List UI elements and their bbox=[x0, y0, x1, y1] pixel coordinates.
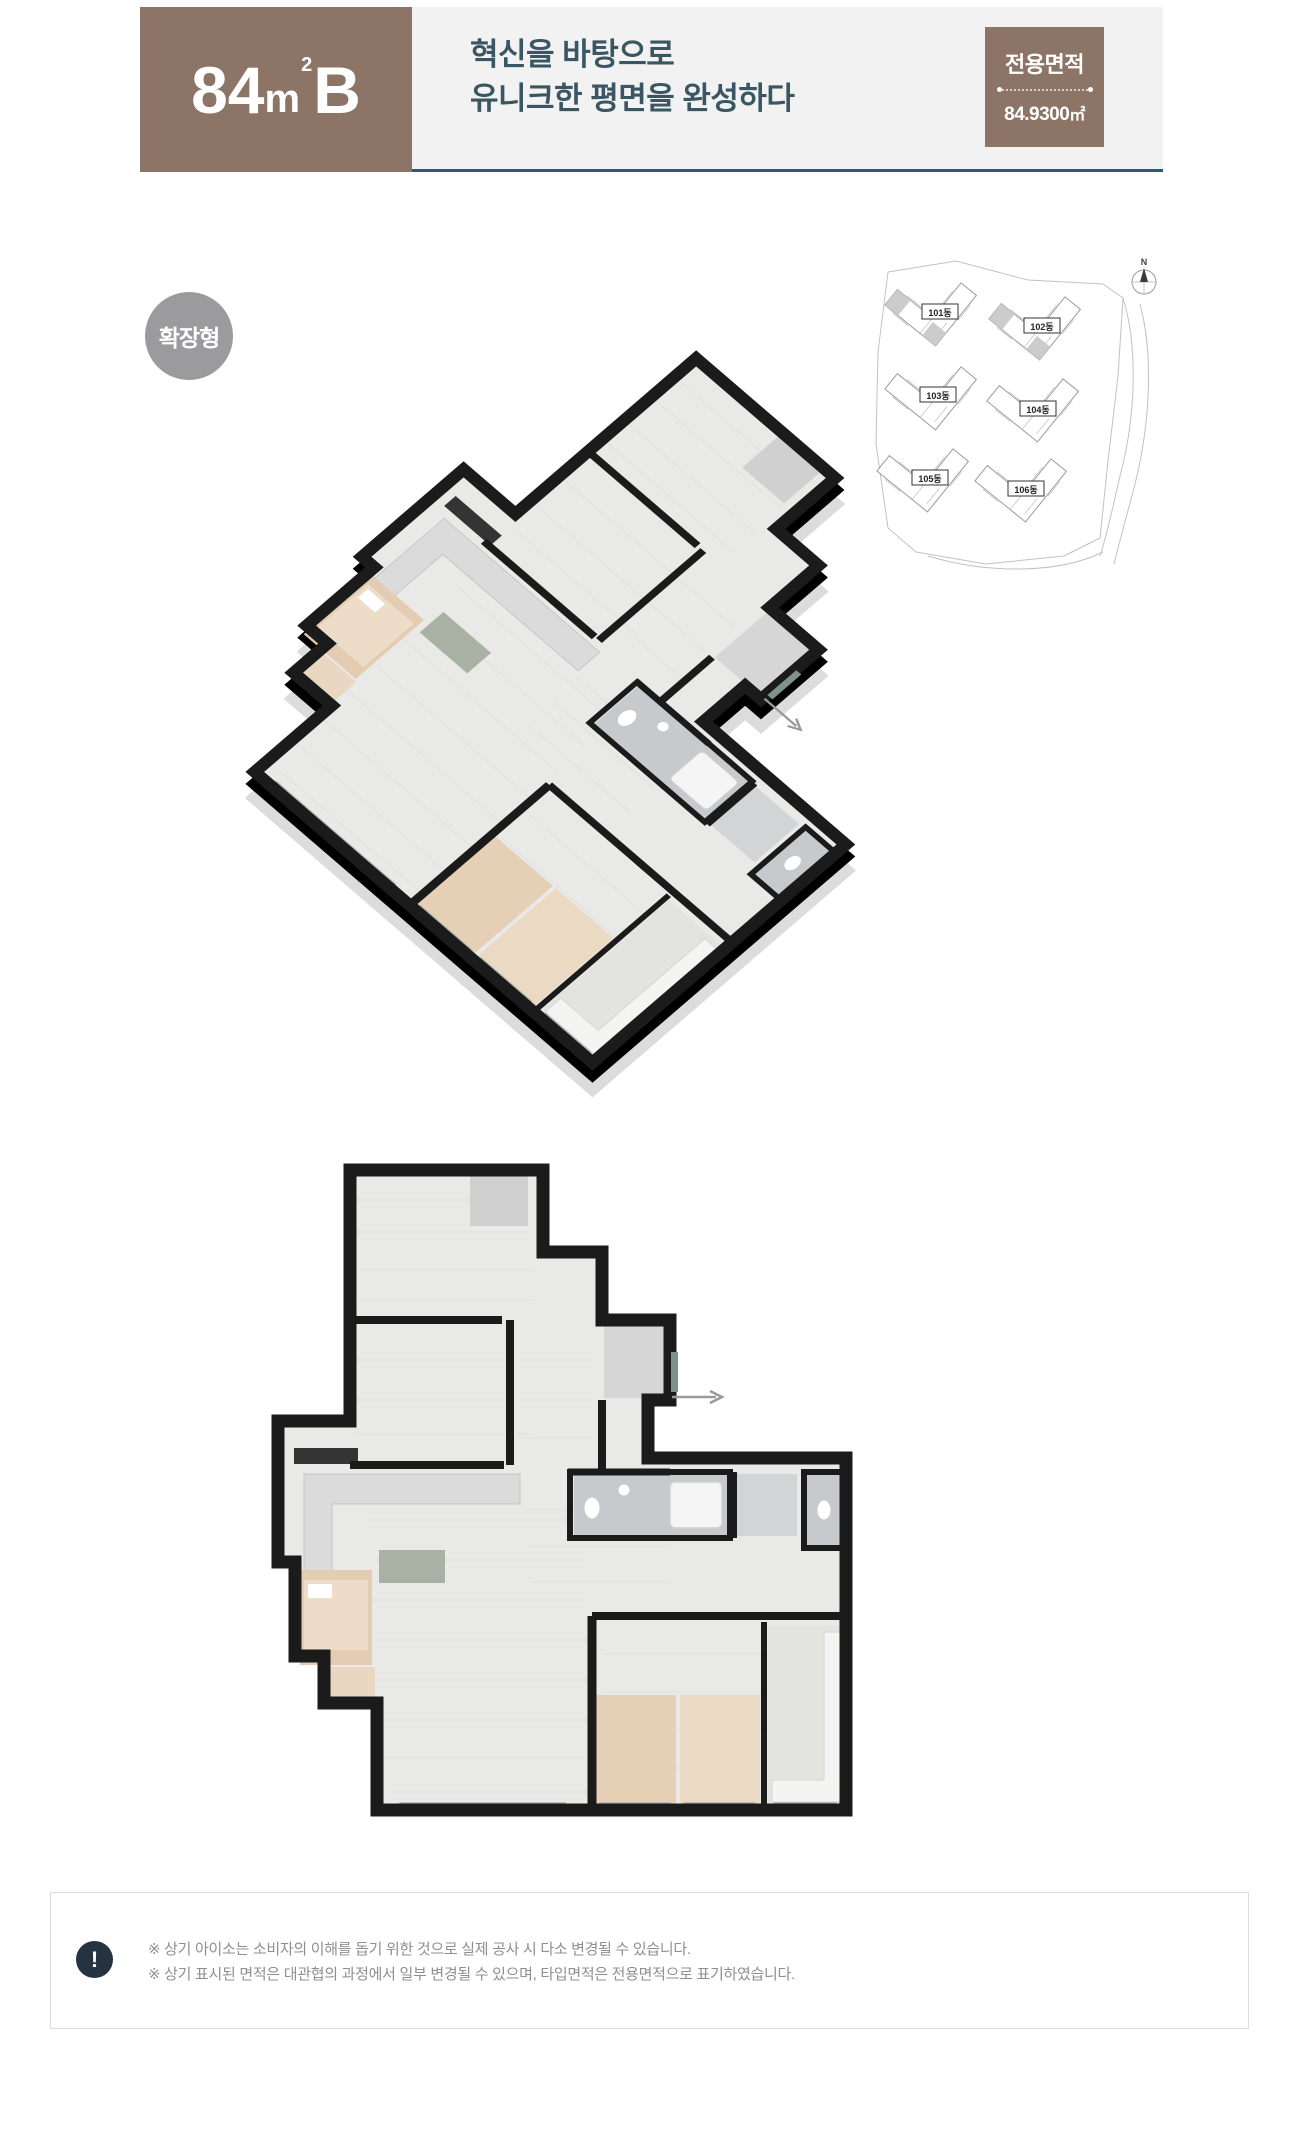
expansion-type-label: 확장형 bbox=[159, 319, 219, 353]
area-unit: ㎡ bbox=[1069, 107, 1085, 124]
building-103-label: 103동 bbox=[920, 387, 956, 402]
disclaimer-note-2: ※ 상기 표시된 면적은 대관협의 과정에서 일부 변경될 수 있으며, 타입면… bbox=[148, 1962, 795, 1987]
floor-plan-page: { "header": { "type_badge": { "number": … bbox=[0, 0, 1300, 2149]
building-105-label: 105동 bbox=[912, 470, 948, 485]
building-106-label: 106동 bbox=[1008, 481, 1044, 496]
exclusive-area-label: 전용면적 bbox=[985, 47, 1104, 79]
title-line1: 혁신을 바탕으로 bbox=[470, 33, 950, 77]
unit-type-superscript: 2 bbox=[301, 54, 312, 76]
site-map: N 101동 102동 103동 104동 105동 106동 bbox=[868, 256, 1174, 582]
exclusive-area-box: 전용면적 84.9300㎡ bbox=[985, 27, 1104, 147]
building-102-label: 102동 bbox=[1024, 318, 1060, 333]
disclaimer-box: ! ※ 상기 아이소는 소비자의 이해를 돕기 위한 것으로 실제 공사 시 다… bbox=[50, 1892, 1249, 2029]
compass-north-label: N bbox=[1141, 257, 1148, 267]
unit-type-number: 84 bbox=[191, 57, 264, 123]
svg-text:104동: 104동 bbox=[1026, 405, 1049, 415]
unit-type-suffix: B bbox=[313, 57, 361, 123]
svg-text:102동: 102동 bbox=[1030, 322, 1053, 332]
dotted-divider bbox=[999, 89, 1091, 93]
building-104-label: 104동 bbox=[1020, 401, 1056, 416]
expansion-type-badge: 확장형 bbox=[145, 292, 233, 380]
svg-text:105동: 105동 bbox=[918, 474, 941, 484]
svg-text:101동: 101동 bbox=[928, 308, 951, 318]
unit-type-badge: 84 m2 B bbox=[140, 7, 412, 172]
svg-text:106동: 106동 bbox=[1014, 485, 1037, 495]
svg-text:103동: 103동 bbox=[926, 391, 949, 401]
exclamation-icon: ! bbox=[76, 1941, 113, 1978]
exclusive-area-value: 84.9300㎡ bbox=[985, 101, 1104, 126]
building-101-label: 101동 bbox=[922, 304, 958, 319]
isometric-floor-plan bbox=[245, 338, 870, 1128]
2d-floor-plan bbox=[264, 1160, 884, 1836]
disclaimer-note-1: ※ 상기 아이소는 소비자의 이해를 돕기 위한 것으로 실제 공사 시 다소 … bbox=[148, 1937, 795, 1962]
compass-icon: N bbox=[1132, 257, 1156, 294]
disclaimer-notes: ※ 상기 아이소는 소비자의 이해를 돕기 위한 것으로 실제 공사 시 다소 … bbox=[148, 1937, 795, 1987]
unit-type-unit: m2 bbox=[265, 79, 312, 119]
title-line2: 유니크한 평면을 완성하다 bbox=[470, 77, 950, 121]
page-title: 혁신을 바탕으로 유니크한 평면을 완성하다 bbox=[470, 33, 950, 121]
